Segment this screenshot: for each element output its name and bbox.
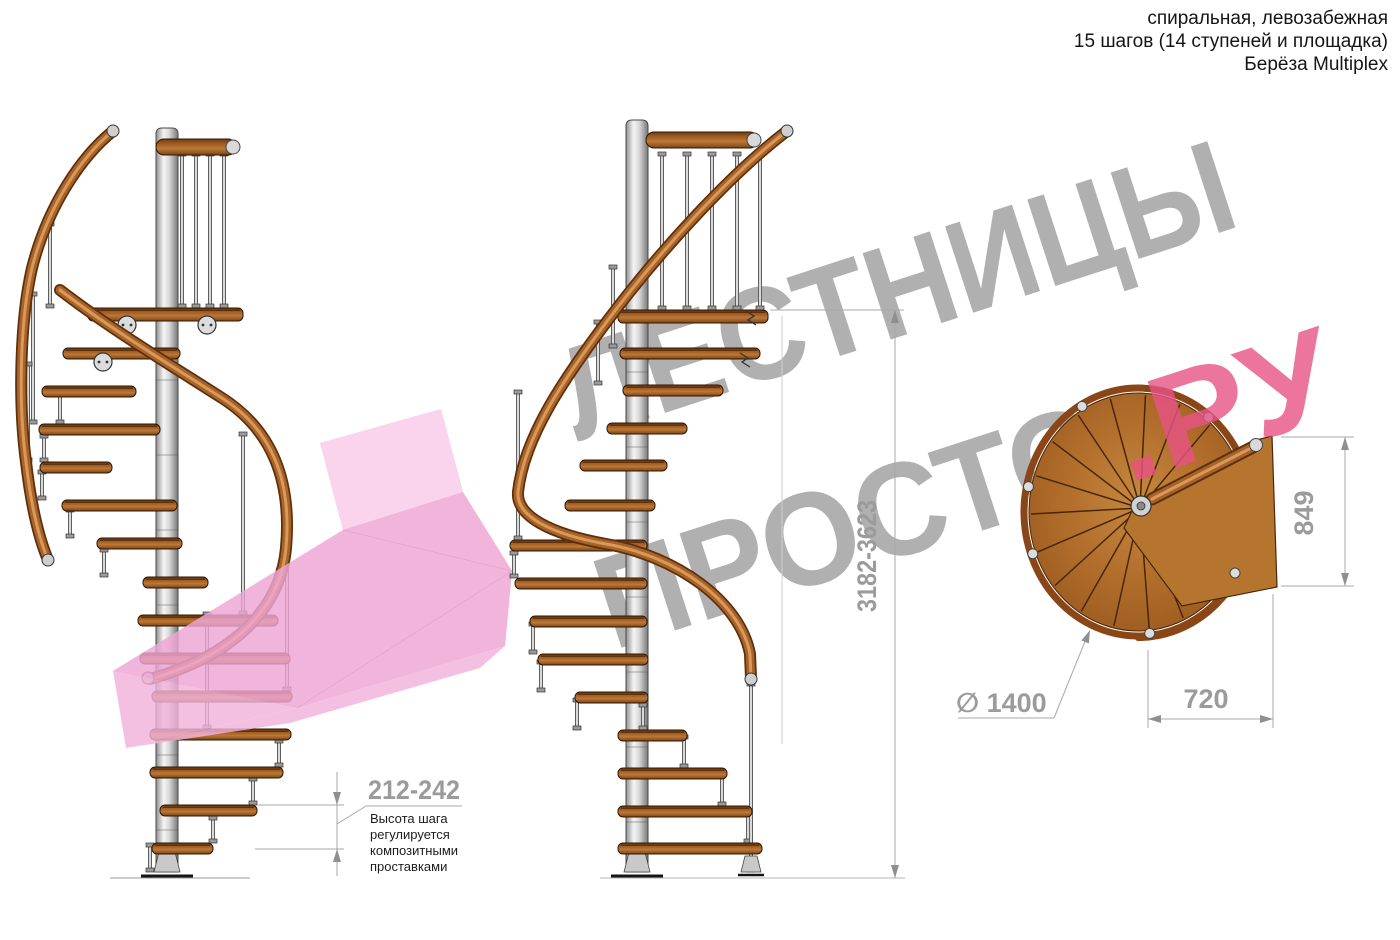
watermark-text-pink: .РУ <box>1090 299 1356 511</box>
technical-drawing-page: ЛЕСТНИЦЫ ПРОСТО .РУ 212-242 Высота шага … <box>0 0 1400 940</box>
dim-total-height: 3182-3623 <box>852 500 882 612</box>
dim-platform-depth: 849 <box>1289 490 1319 535</box>
dim-diameter: ∅ 1400 <box>956 688 1047 718</box>
annotation-line2: регулируется <box>370 827 450 842</box>
dim-step-height: 212-242 <box>368 775 460 805</box>
annotation-line3: композитными <box>370 843 458 858</box>
annotation-line1: Высота шага <box>370 811 448 826</box>
header-line3: Берёза Multiplex <box>1244 54 1388 75</box>
drawing-header: спиральная, левозабежная 15 шагов (14 ст… <box>1074 8 1389 75</box>
header-line2: 15 шагов (14 ступеней и площадка) <box>1074 31 1388 52</box>
staircase-drawing-svg: ЛЕСТНИЦЫ ПРОСТО .РУ 212-242 Высота шага … <box>0 0 1400 940</box>
watermark-line2-pink: .РУ <box>1090 299 1356 511</box>
annotation-line4: проставками <box>370 859 447 874</box>
dim-platform-width: 720 <box>1183 684 1228 714</box>
left-staircase-side-view <box>21 125 292 878</box>
header-line1: спиральная, левозабежная <box>1147 8 1388 29</box>
